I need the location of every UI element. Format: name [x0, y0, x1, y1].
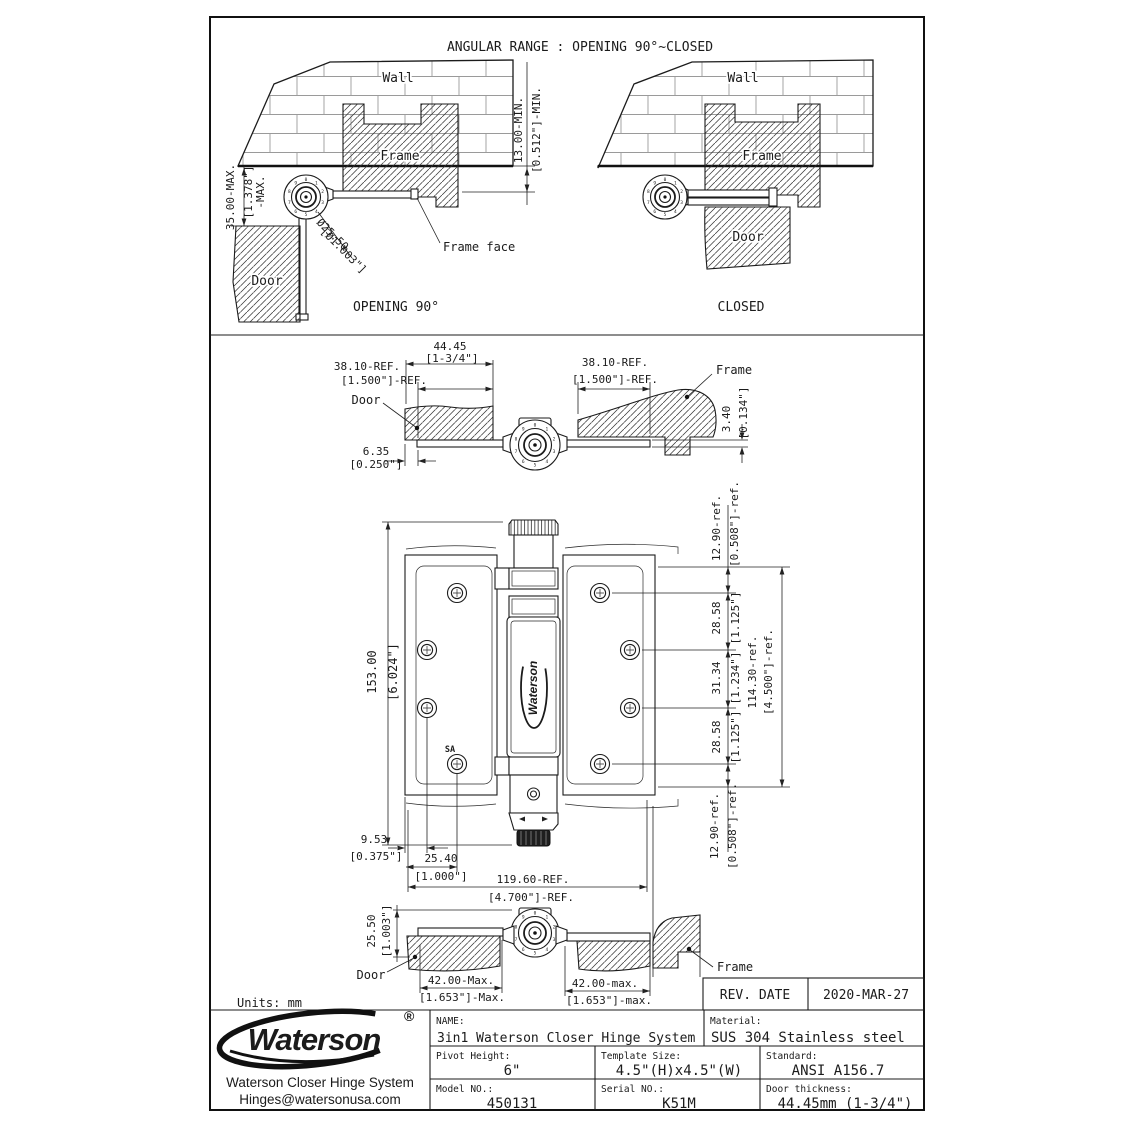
dial-digit: 3	[321, 200, 324, 206]
units-note: Units: mm	[237, 996, 302, 1010]
dim-42-left-in: [1.653"]-Max.	[419, 991, 505, 1004]
dim-635-in: [0.250"]	[350, 458, 403, 471]
frame-label: Frame	[380, 149, 419, 164]
dial-digit: 8	[288, 189, 291, 195]
dial-digit: 1	[545, 914, 548, 920]
dial-digit: 4	[674, 209, 677, 215]
dial-digit: 7	[515, 449, 518, 455]
door-leaf-bar	[417, 440, 503, 447]
serial-no-value: K51M	[662, 1096, 696, 1112]
dim-top-ref: 12.90-ref.	[710, 495, 723, 561]
door-label: Door	[357, 968, 386, 982]
dial-digit: 0	[534, 423, 537, 429]
name-value: 3in1 Waterson Closer Hinge System	[437, 1031, 695, 1046]
dial-digit: 7	[288, 200, 291, 206]
dim-3810-left: 38.10-REF.	[334, 360, 400, 373]
dim-height: 153.00	[365, 650, 379, 693]
dim-953: 9.53	[361, 833, 388, 846]
dim-35: 35.00-MAX.	[224, 164, 237, 230]
door-thickness-label: Door thickness:	[766, 1084, 852, 1095]
door-label: Door	[251, 274, 282, 289]
dim-4445-in: [1-3/4"]	[426, 352, 479, 365]
frame-leaf-bar	[565, 440, 650, 447]
dial-digit: 6	[653, 209, 656, 215]
door-leaf-bar	[418, 928, 503, 936]
dial-digit: 5	[534, 463, 537, 469]
hinge-technical-drawing: ANGULAR RANGE : OPENING 90°~CLOSED 01234…	[0, 0, 1134, 1134]
dial-digit: 3	[553, 449, 556, 455]
dim-leaf: 114.30-ref.	[746, 636, 759, 709]
dial-digit: 5	[305, 212, 308, 218]
door-thickness-value: 44.45mm (1-3/4")	[778, 1096, 913, 1112]
dial-digit: 5	[664, 212, 667, 218]
dim-bot-ref-in: [0.508"]-ref.	[726, 783, 739, 869]
dim-42-left: 42.00-Max.	[428, 974, 494, 987]
frame-face-label: Frame face	[443, 240, 515, 254]
dial-digit: 0	[305, 177, 308, 183]
dial-digit: 0	[534, 911, 537, 917]
dim-row3: 28.58	[710, 720, 723, 753]
dim-2550-in: [1.003"]	[380, 905, 393, 958]
dial-digit: 5	[534, 951, 537, 957]
dim-row1: 28.58	[710, 601, 723, 634]
dial-digit: 7	[647, 200, 650, 206]
dim-13-in: [0.512"]-MIN.	[530, 87, 543, 173]
dial-digit: 8	[515, 436, 518, 442]
dim-row3-in: [1.125"]	[729, 711, 742, 764]
rev-date-value: 2020-MAR-27	[823, 988, 909, 1003]
dial-digit: 3	[553, 937, 556, 943]
dim-953-in: [0.375"]	[350, 850, 403, 863]
dial-digit: 1	[315, 180, 318, 186]
door-label: Door	[352, 393, 381, 407]
dim-340: 3.40	[720, 406, 733, 433]
dial-digit: 2	[553, 924, 556, 930]
pivot-dial: 0123456789	[511, 909, 559, 957]
dial-digit: 6	[522, 459, 525, 465]
company-name: Waterson Closer Hinge System	[226, 1075, 414, 1090]
dim-3810-right: 38.10-REF.	[582, 356, 648, 369]
section-title: ANGULAR RANGE : OPENING 90°~CLOSED	[447, 40, 713, 55]
wall-label: Wall	[727, 71, 758, 86]
dim-row2-in: [1.234"]	[729, 652, 742, 705]
dial-digit: 4	[545, 947, 548, 953]
dim-13: 13.00-MIN.	[512, 97, 525, 163]
pivot-height-value: 6"	[504, 1063, 521, 1079]
wall-label: Wall	[382, 71, 413, 86]
dim-42-right: 42.00-max.	[572, 977, 638, 990]
dial-digit: 9	[653, 180, 656, 186]
leaf-plate-lower	[688, 198, 773, 205]
frame-slab	[577, 941, 650, 971]
dim-width: 119.60-REF.	[497, 873, 570, 886]
dial-digit: 8	[647, 189, 650, 195]
dial-digit: 9	[522, 426, 525, 432]
dim-bot-ref: 12.90-ref.	[708, 793, 721, 859]
rev-date-label: REV. DATE	[720, 988, 790, 1003]
dim-2540: 25.40	[424, 852, 457, 865]
dim-3810-left-in: [1.500"]-REF.	[341, 374, 427, 387]
standard-value: ANSI A156.7	[792, 1063, 885, 1079]
dial-digit: 9	[522, 914, 525, 920]
model-no-label: Model NO.:	[436, 1084, 493, 1095]
company-email: Hinges@watersonusa.com	[239, 1092, 401, 1107]
dim-leaf-in: [4.500"]-ref.	[762, 629, 775, 715]
view-caption: CLOSED	[718, 300, 765, 315]
dim-42-right-in: [1.653"]-max.	[566, 994, 652, 1007]
dim-2550: 25.50	[365, 914, 378, 947]
dial-digit: 4	[545, 459, 548, 465]
name-label: NAME:	[436, 1016, 465, 1027]
brand-reg-mark: ®	[404, 1008, 415, 1024]
dial-digit: 7	[515, 937, 518, 943]
dial-digit: 2	[321, 189, 324, 195]
dim-width-in: [4.700"]-REF.	[488, 891, 574, 904]
dim-3810-right-in: [1.500"]-REF.	[572, 373, 658, 386]
frame-leaf-plate	[333, 191, 417, 198]
material-label: Material:	[710, 1016, 761, 1027]
dim-top-ref-in: [0.508"]-ref.	[728, 481, 741, 567]
pivot-dial: 0123456789	[510, 420, 560, 470]
pivot-height-label: Pivot Height:	[436, 1051, 510, 1062]
door-slab	[407, 936, 500, 971]
dim-635: 6.35	[363, 445, 390, 458]
template-size-value: 4.5"(H)x4.5"(W)	[616, 1063, 742, 1079]
frame-label: Frame	[742, 149, 781, 164]
dial-digit: 2	[680, 189, 683, 195]
frame-leaf-bar	[567, 933, 650, 941]
dim-35-suffix: -MAX.	[254, 175, 267, 208]
dial-digit: 3	[680, 200, 683, 206]
dial-digit: 6	[294, 209, 297, 215]
dim-2540-in: [1.000"]	[415, 870, 468, 883]
brand-text: Waterson	[248, 1022, 381, 1057]
leaf-plate-upper	[688, 190, 773, 197]
dial-digit: 1	[674, 180, 677, 186]
frame-label: Frame	[717, 960, 753, 974]
dim-340-in: [0.134"]	[737, 387, 750, 440]
sa-mark: SA	[445, 745, 455, 755]
dial-digit: 8	[515, 924, 518, 930]
dial-digit: 2	[553, 436, 556, 442]
door-label: Door	[732, 230, 763, 245]
dial-digit: 9	[294, 180, 297, 186]
dim-row1-in: [1.125"]	[729, 592, 742, 645]
serial-no-label: Serial NO.:	[601, 1084, 664, 1095]
tension-nut	[517, 830, 550, 846]
adjustment-dial: 0123456789	[284, 175, 328, 219]
adjustment-dial: 0123456789	[643, 175, 687, 219]
dial-digit: 0	[664, 177, 667, 183]
view-caption: OPENING 90°	[353, 300, 439, 315]
dial-digit: 4	[315, 209, 318, 215]
dim-height-in: [6.024"]	[386, 643, 400, 701]
barrel-logo: Waterson	[526, 661, 540, 715]
frame-label: Frame	[716, 363, 752, 377]
template-size-label: Template Size:	[601, 1051, 681, 1062]
model-no-value: 450131	[487, 1096, 538, 1112]
dial-digit: 6	[522, 947, 525, 953]
dial-digit: 1	[545, 426, 548, 432]
dim-row2: 31.34	[710, 661, 723, 694]
material-value: SUS 304 Stainless steel	[711, 1030, 905, 1046]
standard-label: Standard:	[766, 1051, 817, 1062]
drawing-sheet: ANGULAR RANGE : OPENING 90°~CLOSED 01234…	[0, 0, 1134, 1134]
left-leaf	[405, 555, 497, 795]
